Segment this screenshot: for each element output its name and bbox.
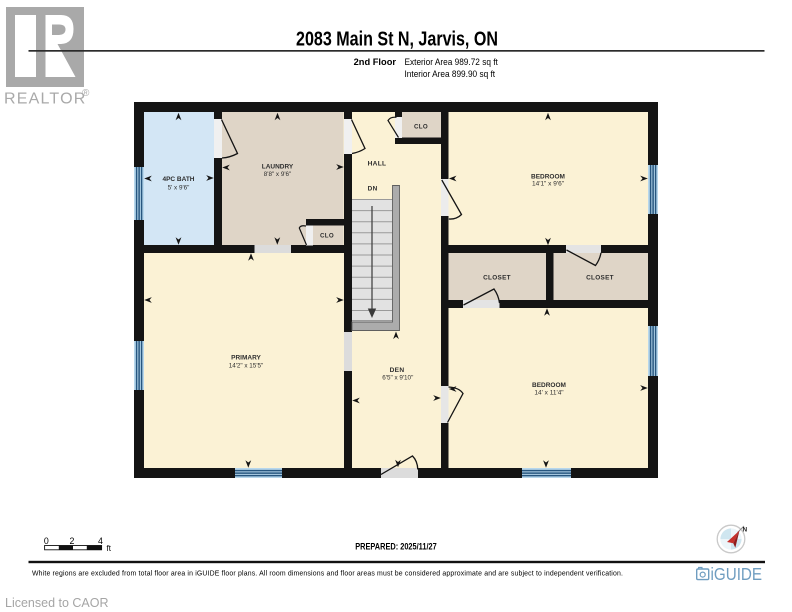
svg-text:®: ®	[82, 88, 90, 99]
svg-text:White regions are excluded fro: White regions are excluded from total fl…	[32, 571, 623, 578]
svg-text:DEN: DEN	[390, 367, 405, 374]
svg-text:CLO: CLO	[320, 233, 334, 240]
svg-text:0: 0	[44, 536, 49, 546]
svg-text:iGUIDE: iGUIDE	[711, 565, 763, 584]
svg-text:4PC BATH: 4PC BATH	[162, 176, 194, 183]
svg-text:REALTOR: REALTOR	[4, 91, 87, 108]
svg-text:8'8" x 9'6": 8'8" x 9'6"	[264, 171, 292, 178]
svg-text:14'1" x 9'6": 14'1" x 9'6"	[532, 181, 565, 188]
svg-text:PREPARED: 2025/11/27: PREPARED: 2025/11/27	[355, 542, 437, 552]
svg-text:2: 2	[70, 536, 75, 546]
svg-text:Exterior Area 989.72 sq ft: Exterior Area 989.72 sq ft	[405, 57, 499, 68]
svg-text:2083 Main St N, Jarvis, ON: 2083 Main St N, Jarvis, ON	[296, 26, 498, 49]
svg-text:2nd Floor: 2nd Floor	[354, 57, 397, 67]
svg-text:5' x 9'6": 5' x 9'6"	[168, 185, 190, 192]
svg-text:4: 4	[98, 536, 103, 546]
svg-text:Licensed to CAOR: Licensed to CAOR	[5, 596, 109, 610]
svg-text:N: N	[743, 527, 748, 534]
svg-text:LAUNDRY: LAUNDRY	[262, 164, 294, 171]
svg-text:ft: ft	[107, 544, 112, 553]
svg-text:CLO: CLO	[414, 124, 428, 131]
svg-text:14'2" x 15'5": 14'2" x 15'5"	[229, 363, 264, 370]
svg-text:6'5" x 9'10": 6'5" x 9'10"	[382, 375, 413, 382]
svg-text:CLOSET: CLOSET	[586, 275, 614, 282]
svg-text:14' x 11'4": 14' x 11'4"	[534, 390, 564, 397]
svg-text:CLOSET: CLOSET	[483, 275, 511, 282]
svg-text:Interior Area 899.90 sq ft: Interior Area 899.90 sq ft	[405, 69, 496, 80]
svg-text:PRIMARY: PRIMARY	[231, 355, 261, 362]
svg-text:HALL: HALL	[368, 161, 387, 168]
svg-text:BEDROOM: BEDROOM	[531, 174, 565, 181]
svg-text:DN: DN	[368, 186, 378, 193]
svg-text:BEDROOM: BEDROOM	[532, 382, 566, 389]
